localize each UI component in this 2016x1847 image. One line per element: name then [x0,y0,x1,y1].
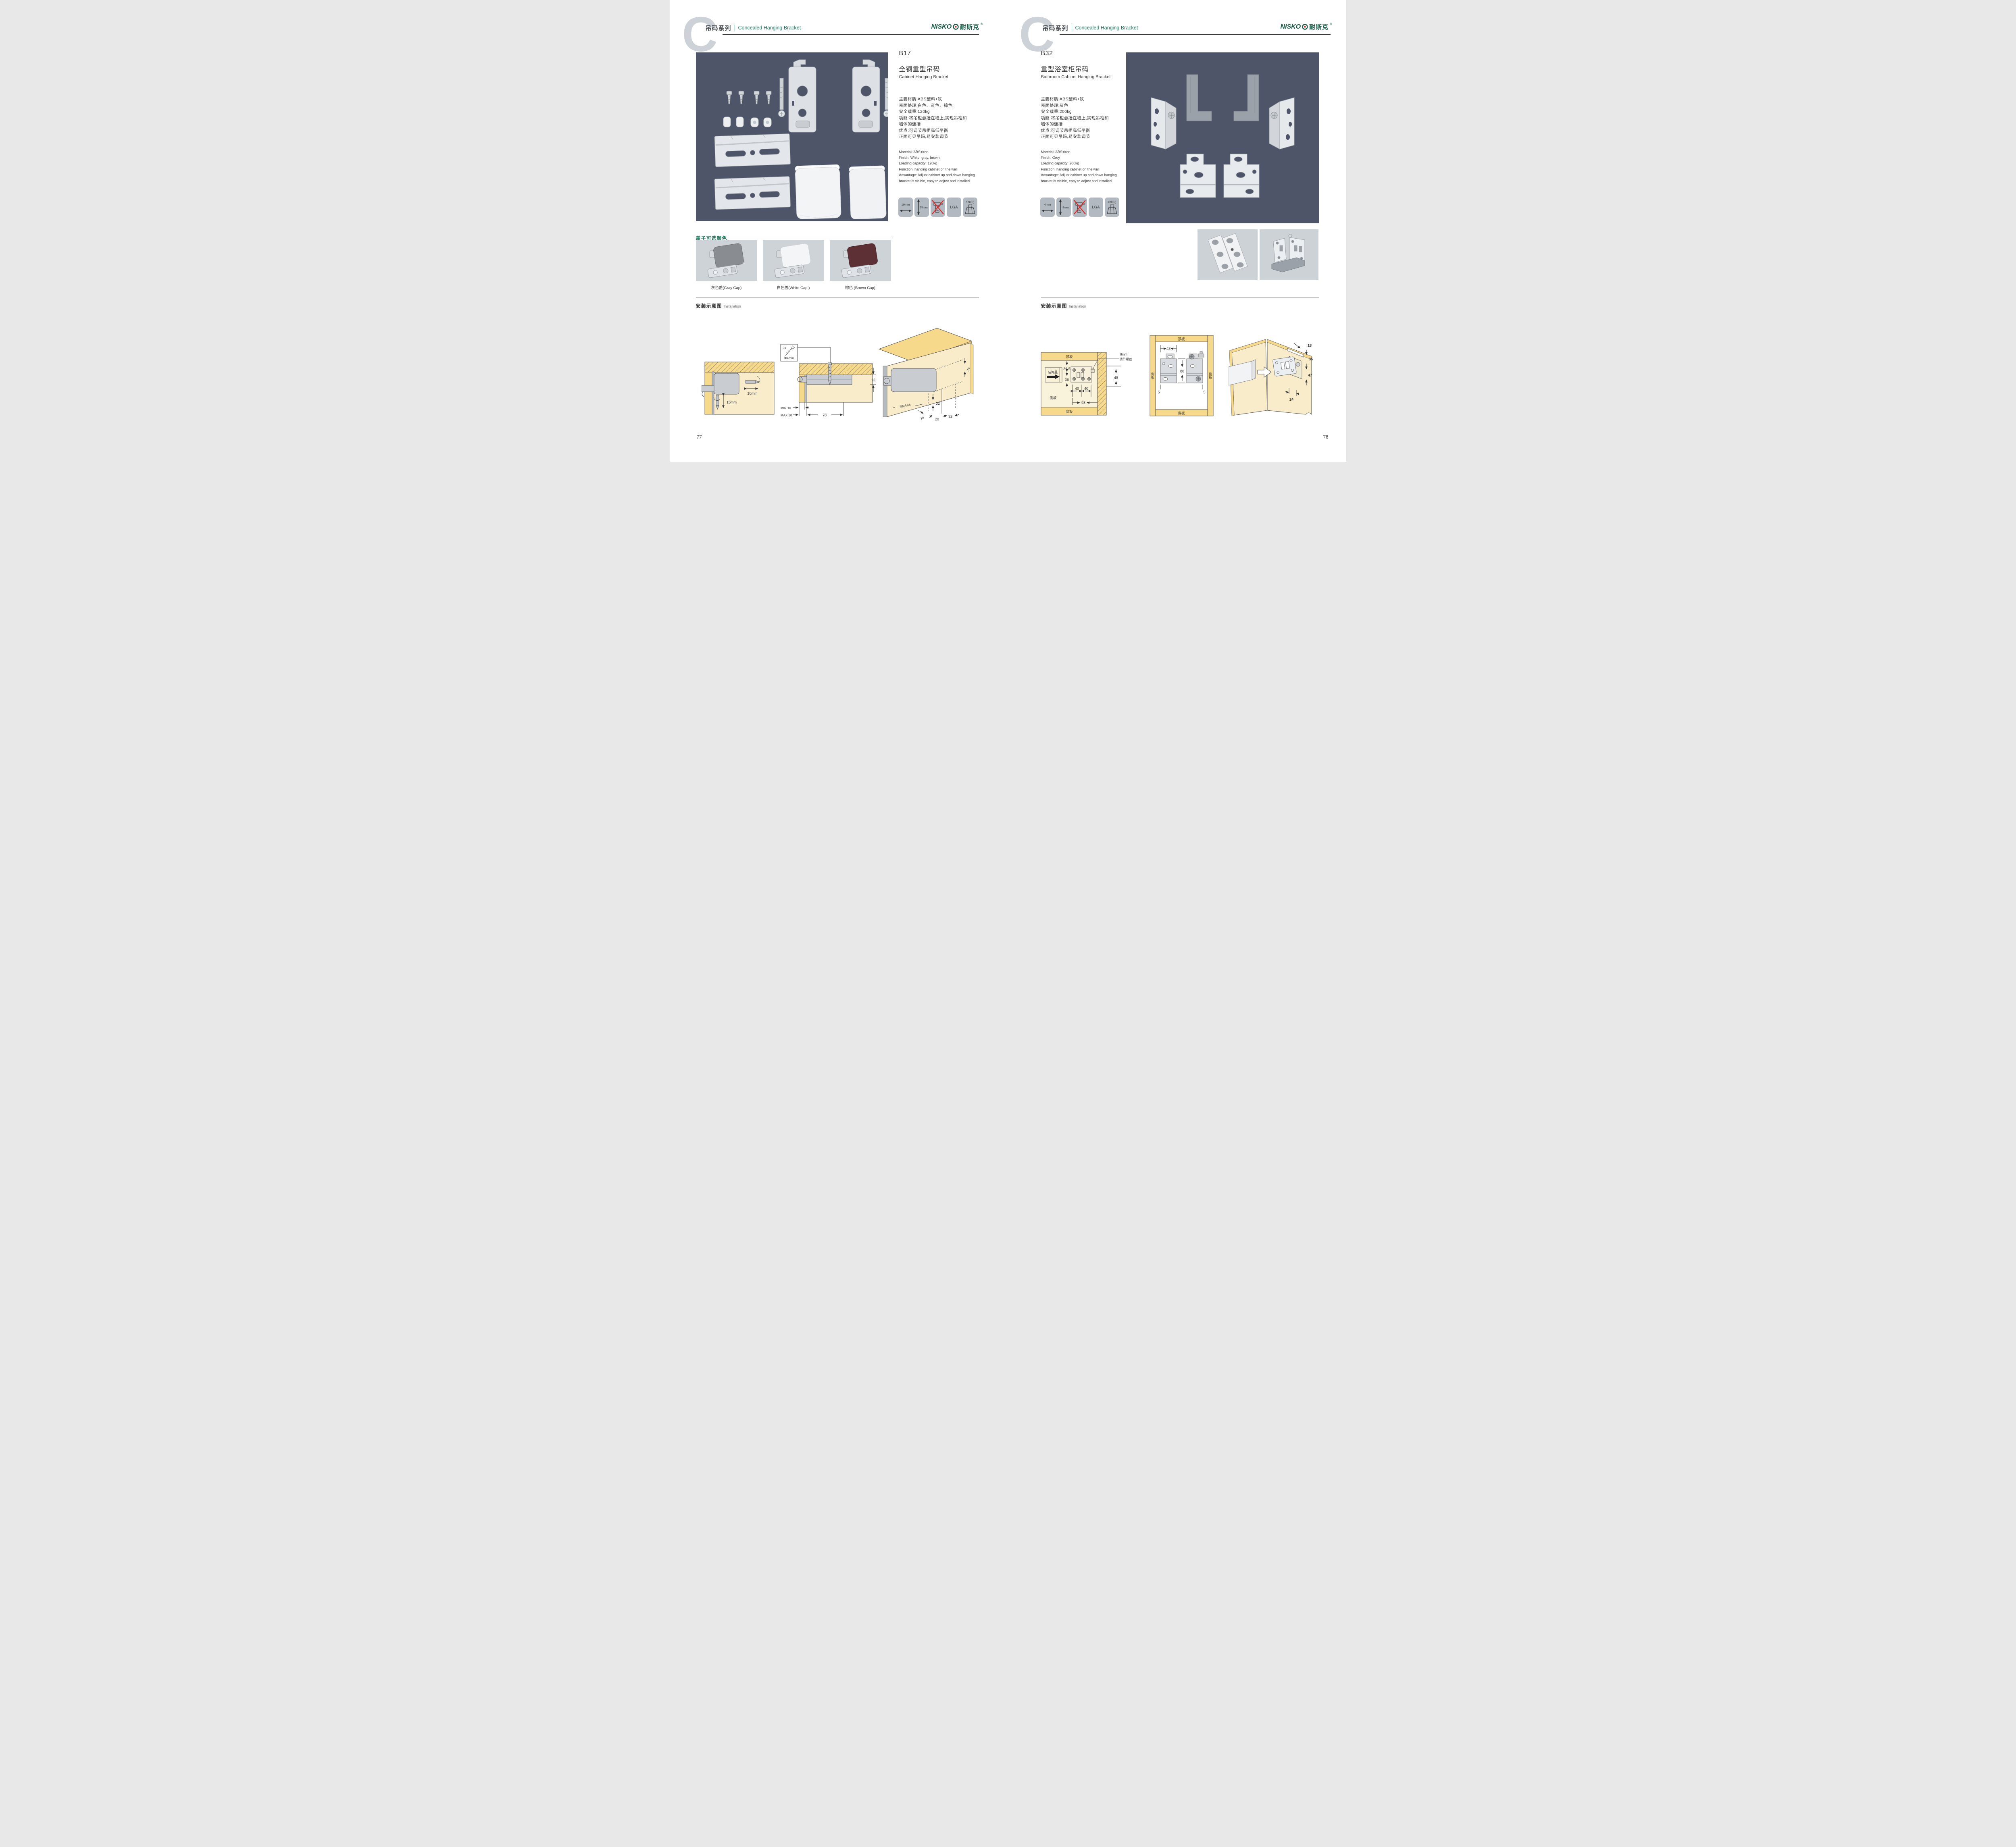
svg-text:10mm: 10mm [901,203,910,206]
svg-text:36: 36 [1064,378,1068,382]
spec-line: 优点:可调节吊柜高低平衡 [1041,128,1130,134]
header-rule-right [1060,34,1331,35]
spec-line: Loading capacity: 200kg [1041,160,1130,166]
svg-text:顶板: 顶板 [1066,355,1073,359]
svg-text:15mm: 15mm [920,206,928,209]
spec-line: 优点:可调节吊柜高低平衡 [899,128,985,134]
spec-line: bracket is visible, easy to adjust and i… [1041,178,1130,184]
spec-line: Material: ABS+iron [899,149,985,155]
b17-code: B17 [899,50,985,57]
svg-text:装饰盖: 装饰盖 [1048,370,1058,374]
install-title-cn: 安装示意图 [1041,303,1067,309]
icon-no-drill [931,198,945,217]
spec-line: 表面处理:白色、灰色、棕色 [899,103,985,109]
icon-height: 8mm [1056,198,1071,217]
brand-logo-cn: 耐斯克 [1309,23,1329,31]
svg-text:80: 80 [1180,369,1184,373]
spec-line: 安全载重:120kg [899,109,985,115]
svg-text:48: 48 [1114,376,1118,380]
spec-line: 功能:将吊柜悬挂在墙上,实现吊柜和 [899,115,985,122]
svg-text:48: 48 [1166,347,1170,351]
svg-text:20: 20 [935,417,939,421]
svg-text:18: 18 [1308,343,1312,347]
series-subtitle: Concealed Hanging Bracket [1075,25,1138,31]
header-separator [1072,25,1072,31]
brand-reg-mark: ® [981,23,983,26]
cap-box-gray [696,240,757,281]
b32-name-cn: 重型浴室柜吊码 [1041,64,1130,73]
svg-text:5: 5 [1158,390,1160,394]
svg-text:8mm: 8mm [1062,206,1069,209]
svg-text:5: 5 [1203,390,1205,394]
spec-line: Function: hanging cabinet on the wall [899,166,985,172]
brand-reg-mark: ® [1330,23,1332,26]
spec-line: 墙体的连接 [899,121,985,128]
icon-width: 4mm [1040,198,1055,217]
spec-line: Function: hanging cabinet on the wall [1041,166,1130,172]
svg-text:底板: 底板 [1066,410,1073,414]
brand-logo-cn: 耐斯克 [960,23,979,31]
caps-title-rule [729,238,891,238]
svg-text:200Kg: 200Kg [1108,201,1116,204]
cap-box-white [763,240,824,281]
icon-load-capacity: 120Kg [963,198,977,217]
brand-logo-latin: NISKO [1281,23,1301,31]
brand-target-icon [953,24,959,30]
install-title-en: Installation [724,304,741,308]
svg-text:13: 13 [871,378,875,382]
svg-text:98: 98 [1081,401,1085,405]
spec-line: Finish: Grey [1041,155,1130,160]
icon-cert-lga: LGA [1089,198,1103,217]
install-title-left: 安装示意图 Installation [696,302,741,309]
page-number-left: 77 [697,434,702,440]
b32-product-photo [1126,52,1319,223]
svg-text:侧板: 侧板 [1208,372,1212,379]
cap-label: 棕色 (Brown Cap) [830,285,891,290]
b17-specs-en: Material: ABS+ironFinish: White, gray, b… [899,149,985,184]
b32-install-diagram-3: 18 35 47 24 [1229,331,1318,420]
page-number-right: 78 [1323,434,1329,440]
b32-detail-photo-plates [1198,229,1258,280]
svg-text:36.5: 36.5 [1063,367,1070,371]
install-title-cn: 安装示意图 [696,303,722,309]
spec-line: 表面处理:灰色 [1041,103,1130,109]
svg-text:2x: 2x [783,346,786,350]
series-subtitle: Concealed Hanging Bracket [738,25,801,31]
install-title-en: Installation [1069,304,1086,308]
cap-label: 白色盖(White Cap ) [763,285,824,290]
b32-code: B32 [1041,50,1130,57]
svg-text:18: 18 [920,416,925,420]
spec-line: 墙体的连接 [1041,121,1130,128]
install-rule-right [1041,297,1319,298]
b17-info-column: B17 全钢重型吊码 Cabinet Hanging Bracket 主要材质:… [899,50,985,184]
b32-install-diagram-2: 顶板 底板 侧板 侧板 48 80 5 [1148,334,1215,418]
svg-text:MIN.10: MIN.10 [781,406,791,410]
b17-bracket-left [778,60,888,132]
spec-line: 正面可见吊码,易安装调节 [899,134,985,140]
spec-line: Advantage: Adjust cabinet up and down ha… [899,172,985,178]
spec-line: Material: ABS+iron [1041,149,1130,155]
icon-width: 10mm [898,198,913,217]
svg-text:47: 47 [1308,373,1312,377]
svg-text:24: 24 [1289,397,1293,401]
b32-attribute-icons: 4mm 8mm [1040,198,1119,217]
svg-text:4mm: 4mm [1044,203,1051,206]
cap-color-labels: 灰色盖(Gray Cap)白色盖(White Cap )棕色 (Brown Ca… [696,285,891,290]
brand-logo-latin: NISKO [931,23,952,31]
install-title-right: 安装示意图 Installation [1041,302,1086,309]
b32-detail-photo-bracket [1260,229,1318,280]
brand-logo-right: NISKO 耐斯克 ® [1281,23,1332,31]
svg-text:顶板: 顶板 [1178,337,1185,341]
cap-color-boxes [696,240,891,281]
svg-text:LGA: LGA [1092,205,1100,210]
b17-install-diagram-3: 34 32 RMAX4 18 20 32 [877,325,974,421]
page-header-left: 吊码系列 Concealed Hanging Bracket [706,23,801,32]
icon-height: 15mm [914,198,929,217]
b17-specs-cn: 主要材质:ABS塑料+铁表面处理:白色、灰色、棕色安全载重:120kg功能:将吊… [899,96,985,140]
icon-cert-lga: LGA [947,198,961,217]
svg-text:侧板: 侧板 [1050,396,1057,400]
b17-photo-illustration [696,52,888,221]
b32-name-en: Bathroom Cabinet Hanging Bracket [1041,75,1130,79]
catalog-spread: C 吊码系列 Concealed Hanging Bracket NISKO 耐… [670,0,1346,462]
spec-line: 正面可见吊码,易安装调节 [1041,134,1130,140]
svg-text:LGA: LGA [950,205,958,210]
b17-name-cn: 全钢重型吊码 [899,64,985,73]
spec-line: bracket is visible, easy to adjust and i… [899,178,985,184]
svg-text:40: 40 [1075,387,1079,391]
spec-line: 主要材质:ABS塑料+铁 [1041,96,1130,103]
svg-text:Φ4mm: Φ4mm [784,356,793,360]
svg-text:78: 78 [822,413,826,417]
spec-line: Loading capacity: 120kg [899,160,985,166]
svg-text:侧板: 侧板 [1151,372,1154,379]
b32-info-column: B32 重型浴室柜吊码 Bathroom Cabinet Hanging Bra… [1041,50,1130,184]
spec-line: 功能:将吊柜悬挂在墙上,实现吊柜和 [1041,115,1130,122]
b32-specs-cn: 主要材质:ABS塑料+铁表面处理:灰色安全载重:200kg功能:将吊柜悬挂在墙上… [1041,96,1130,140]
icon-load-capacity: 200Kg [1105,198,1119,217]
cap-box-brown [830,240,891,281]
spec-line: 安全载重:200kg [1041,109,1130,115]
header-rule-left [723,34,979,35]
b17-install-diagram-1: 10mm 15mm [702,356,777,417]
series-title: 吊码系列 [706,24,731,32]
svg-text:35: 35 [1309,357,1313,361]
svg-text:10mm: 10mm [747,391,757,395]
header-separator [735,25,735,31]
svg-text:MAX.30: MAX.30 [781,414,792,417]
spec-line: Advantage: Adjust cabinet up and down ha… [1041,172,1130,178]
svg-text:40: 40 [1084,387,1088,391]
page-header-right: 吊码系列 Concealed Hanging Bracket [1043,23,1138,32]
chapter-monogram-left: C [682,10,716,59]
b32-specs-en: Material: ABS+ironFinish: GreyLoading ca… [1041,149,1130,184]
b32-install-diagram-1: 顶板 底板 侧板 装饰盖 36.5 36 40 40 98 [1040,350,1132,418]
svg-text:120Kg: 120Kg [966,201,974,204]
spec-line: 主要材质:ABS塑料+铁 [899,96,985,103]
svg-text:32: 32 [948,414,952,418]
cap-label: 灰色盖(Gray Cap) [696,285,757,290]
svg-text:15mm: 15mm [727,400,737,404]
svg-text:32: 32 [936,401,940,406]
b17-product-photo [696,52,888,221]
b17-install-diagram-2: 2x Φ4mm 13 MIN.10 MAX.30 78 [779,343,877,418]
svg-text:8mm: 8mm [1120,353,1127,356]
b17-name-en: Cabinet Hanging Bracket [899,75,985,79]
install-rule-left [696,297,979,298]
brand-logo-left: NISKO 耐斯克 ® [931,23,983,31]
spec-line: Finish: White, gray, brown [899,155,985,160]
b17-attribute-icons: 10mm 15mm [898,198,977,217]
b32-photo-illustration [1126,52,1319,223]
svg-text:底板: 底板 [1178,411,1185,415]
svg-text:调节螺丝: 调节螺丝 [1119,357,1132,361]
icon-no-drill [1073,198,1087,217]
brand-target-icon [1302,24,1308,30]
series-title: 吊码系列 [1043,24,1068,32]
